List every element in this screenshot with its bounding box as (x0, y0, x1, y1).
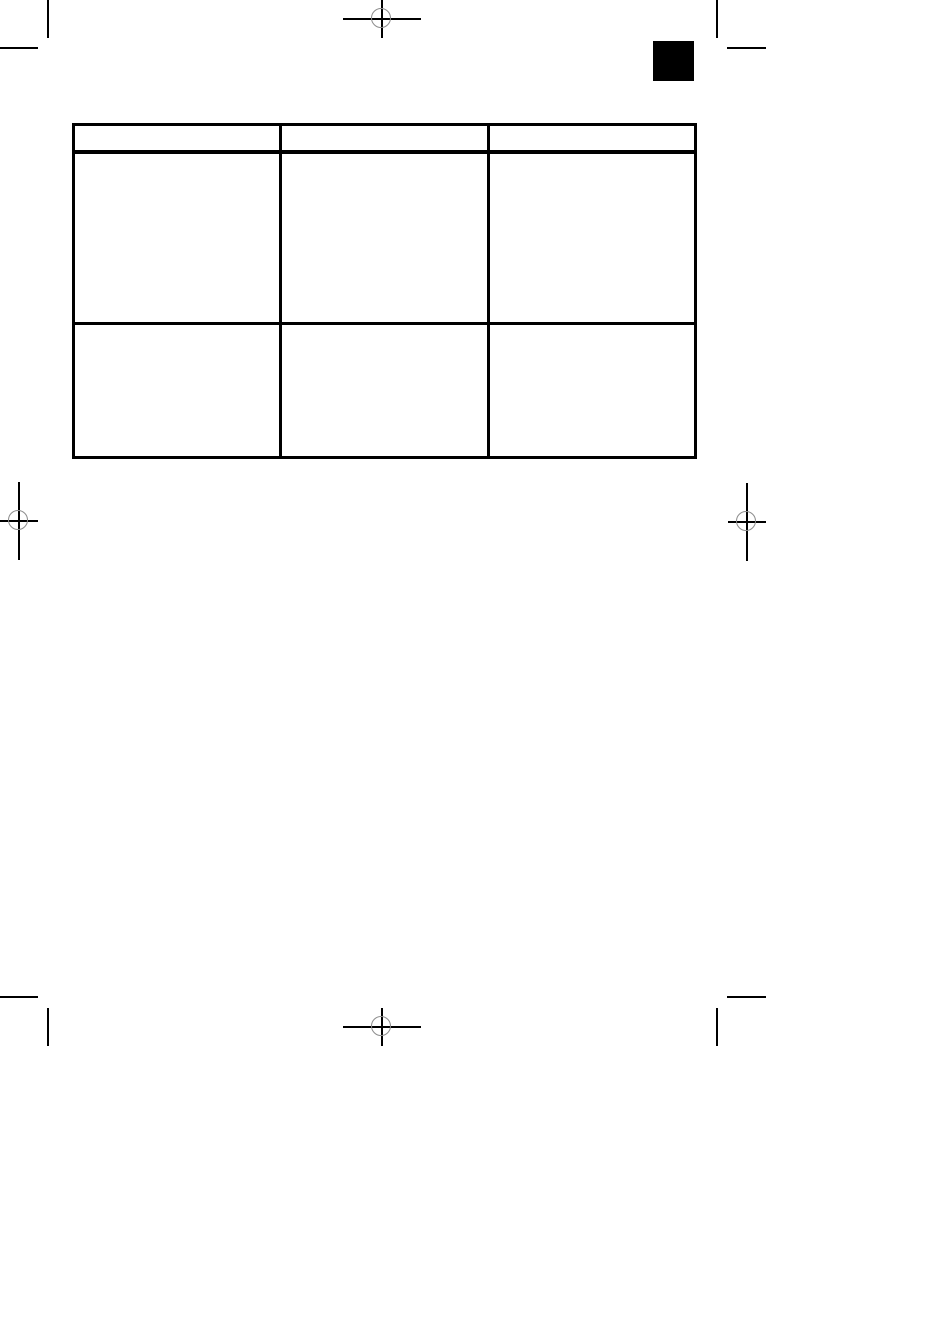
trim-mark-bottom-left-vertical-icon (47, 1008, 49, 1046)
table-cell (74, 324, 281, 458)
trim-mark-top-left-horizontal-icon (0, 47, 38, 49)
registration-mark-right-middle-icon (707, 482, 787, 562)
section-index-square (653, 41, 694, 81)
table-cell (489, 152, 696, 324)
table-header-cell (74, 125, 281, 153)
registration-circle (736, 511, 756, 531)
table-header-cell (489, 125, 696, 153)
registration-mark-top-center-icon (342, 0, 422, 59)
table-header-row (74, 125, 696, 153)
trim-mark-top-right-vertical-icon (716, 0, 718, 38)
table-cell (74, 152, 281, 324)
trim-mark-bottom-left-horizontal-icon (0, 996, 38, 998)
trim-mark-bottom-right-horizontal-icon (727, 996, 766, 998)
registration-circle (371, 8, 391, 28)
registration-mark-left-middle-icon (0, 481, 59, 561)
table-cell (281, 152, 489, 324)
registration-circle (8, 510, 28, 530)
registration-mark-bottom-center-icon (342, 987, 422, 1067)
table-row (74, 152, 696, 324)
table-header-cell (281, 125, 489, 153)
trim-mark-top-left-vertical-icon (47, 0, 49, 38)
trim-mark-top-right-horizontal-icon (727, 47, 766, 49)
content-table (72, 123, 697, 459)
document-page (0, 0, 950, 1344)
table-cell (489, 324, 696, 458)
registration-circle (371, 1016, 391, 1036)
table-row (74, 324, 696, 458)
table-cell (281, 324, 489, 458)
trim-mark-bottom-right-vertical-icon (716, 1008, 718, 1046)
